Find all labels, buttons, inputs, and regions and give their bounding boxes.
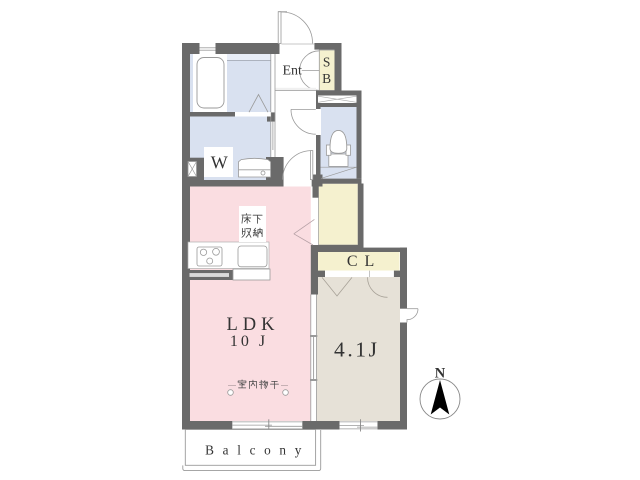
svg-text:S: S [323,55,331,70]
svg-text:Ent: Ent [282,64,302,79]
svg-text:C L: C L [347,253,376,270]
svg-text:N: N [435,366,446,382]
svg-text:W: W [211,153,228,173]
svg-text:LDK: LDK [226,315,279,335]
svg-text:B: B [322,71,331,86]
svg-text:4.1J: 4.1J [334,338,380,362]
svg-text:Balcony: Balcony [205,442,310,457]
svg-text:10 J: 10 J [230,333,268,350]
